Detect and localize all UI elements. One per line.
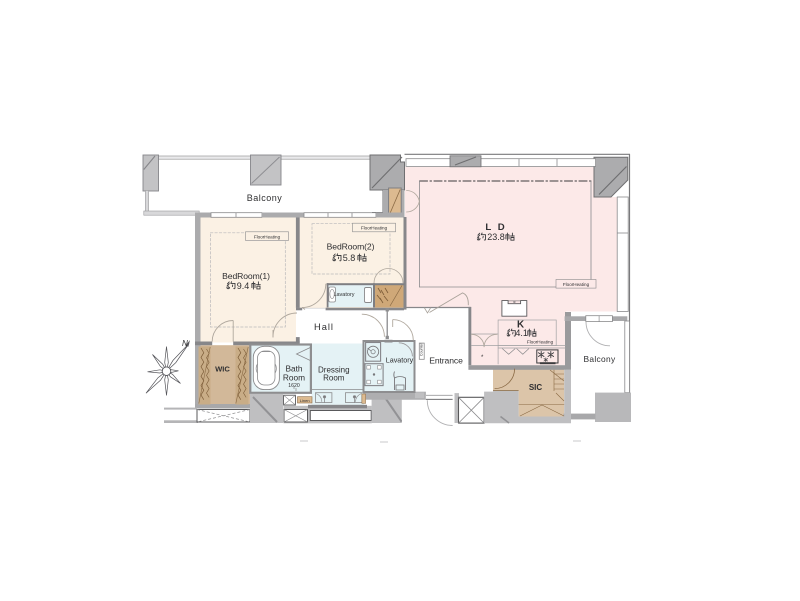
svg-text:Lavatory: Lavatory bbox=[333, 292, 354, 298]
svg-text:Linen: Linen bbox=[300, 398, 310, 403]
svg-text:Balcony: Balcony bbox=[247, 193, 283, 203]
svg-text:SIC: SIC bbox=[529, 383, 543, 392]
svg-text:FloorHeating: FloorHeating bbox=[361, 226, 388, 231]
svg-text:9.4: 9.4 bbox=[237, 281, 250, 291]
svg-text:BedRoom(2): BedRoom(2) bbox=[327, 241, 375, 251]
svg-text:FloorHeating: FloorHeating bbox=[527, 340, 554, 345]
svg-text:Entrance: Entrance bbox=[429, 356, 463, 366]
svg-text:Room: Room bbox=[283, 372, 305, 382]
svg-text:Lavatory: Lavatory bbox=[386, 356, 414, 365]
svg-text:23.8: 23.8 bbox=[487, 232, 505, 242]
svg-text:Counter: Counter bbox=[419, 342, 423, 356]
svg-text:5.8: 5.8 bbox=[343, 253, 356, 263]
svg-text:Hall: Hall bbox=[314, 322, 334, 332]
svg-text:Balcony: Balcony bbox=[584, 354, 616, 364]
svg-text:N: N bbox=[182, 339, 188, 348]
svg-text:BedRoom(1): BedRoom(1) bbox=[222, 271, 270, 281]
svg-text:FloorHeating: FloorHeating bbox=[563, 282, 590, 287]
svg-text:1620: 1620 bbox=[288, 383, 300, 389]
svg-text:4.1: 4.1 bbox=[515, 328, 528, 338]
svg-text:FloorHeating: FloorHeating bbox=[254, 234, 281, 239]
svg-text:WIC: WIC bbox=[215, 365, 230, 374]
svg-text:Room: Room bbox=[323, 374, 345, 383]
